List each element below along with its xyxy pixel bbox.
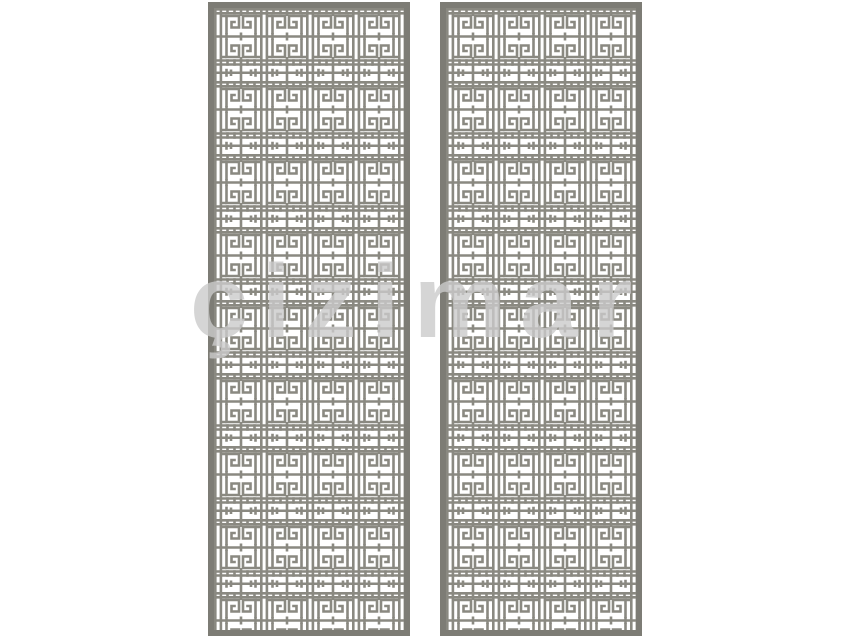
design-canvas: çizimar [0, 0, 850, 638]
panel-interior-pattern [446, 8, 636, 630]
panel-left [208, 2, 410, 636]
panel-right [440, 2, 642, 636]
panel-interior-pattern [214, 8, 404, 630]
